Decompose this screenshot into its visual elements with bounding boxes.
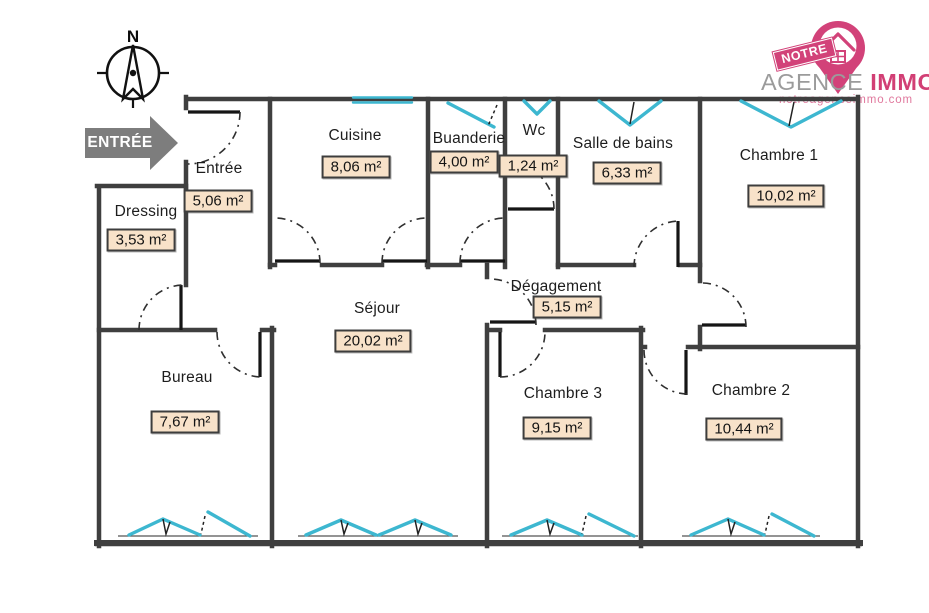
area-badge-degagement: 5,15 m² [533,296,602,319]
entrance-arrow-label: ENTRÉE [87,134,152,152]
room-label-degagement: Dégagement [511,278,602,296]
area-badge-cuisine: 8,06 m² [322,156,391,179]
room-label-wc: Wc [523,122,546,140]
room-label-sejour: Séjour [354,300,400,318]
floor-plan-page: notreagenceimmo.com [0,0,929,613]
area-badge-buanderie: 4,00 m² [430,151,499,174]
area-badge-chambre-3: 9,15 m² [523,417,592,440]
window-chambre-3-1 [511,520,582,535]
area-badge-wc: 1,24 m² [499,155,568,178]
compass-icon [97,45,169,108]
room-label-chambre-2: Chambre 2 [712,382,790,400]
room-label-bureau: Bureau [161,369,212,387]
room-label-entree: Entrée [196,160,243,178]
area-badge-bureau: 7,67 m² [151,411,220,434]
agency-name-pink: IMMO [870,69,929,95]
agency-name-gray: AGENCE [761,69,863,95]
window-buanderie [448,103,494,127]
area-badge-entree: 5,06 m² [184,190,253,213]
room-label-buanderie: Buanderie [433,130,505,148]
room-label-chambre-1: Chambre 1 [740,147,818,165]
area-badge-sejour: 20,02 m² [334,330,411,353]
room-label-cuisine: Cuisine [328,127,381,145]
window-wc [524,101,550,114]
window-chambre-2-2 [772,514,814,536]
room-label-salle-de-bains: Salle de bains [573,135,673,153]
area-badge-salle-de-bains: 6,33 m² [593,162,662,185]
area-badge-chambre-1: 10,02 m² [747,185,824,208]
room-label-chambre-3: Chambre 3 [524,385,602,403]
agency-name: AGENCE IMMO [761,70,929,94]
compass-north-label: N [127,27,139,47]
window-bureau-2 [208,512,250,536]
window-chambre-3-2 [589,514,634,536]
area-badge-chambre-2: 10,44 m² [705,418,782,441]
window-chambre-2-1 [691,519,764,535]
area-badge-dressing: 3,53 m² [107,229,176,252]
room-label-dressing: Dressing [115,203,178,221]
